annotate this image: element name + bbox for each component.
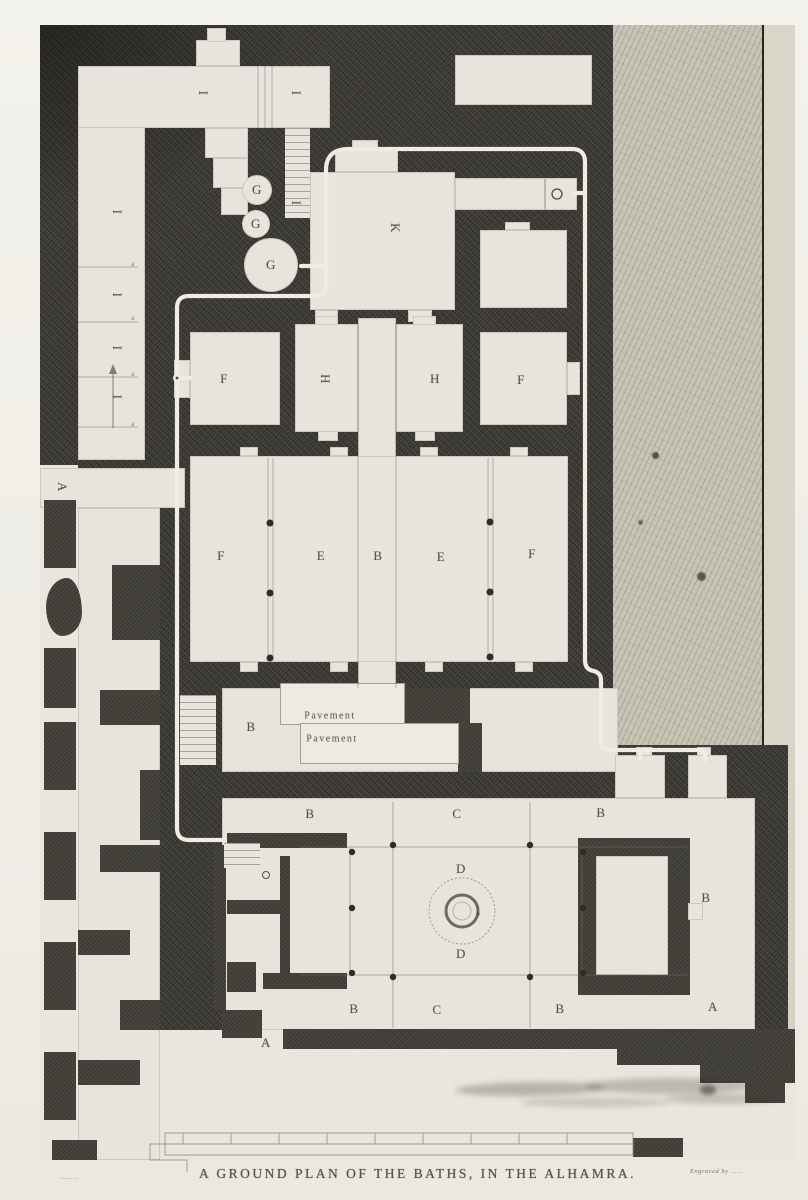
plan-label-i: I (109, 293, 125, 298)
plan-label-c: C (432, 1002, 441, 1018)
plan-label-a: A (261, 1035, 271, 1051)
plan-label-d: D (456, 946, 466, 962)
plan-label-a: A (708, 999, 718, 1015)
plate-caption: A GROUND PLAN OF THE BATHS, IN THE ALHAM… (40, 1166, 795, 1182)
plan-label-i: I (195, 91, 211, 96)
plan-label-pavement: Pavement (306, 734, 357, 745)
plan-label-h: H (317, 374, 333, 384)
plan-label-a: a (131, 370, 135, 378)
plan-label-f: F (528, 546, 536, 562)
engraved-plate-page: IIIIIIIaaaaGGGKFHHFFEBEFBPavementPavemen… (0, 0, 808, 1200)
plan-label-b: B (701, 890, 710, 906)
plan-label-k: K (387, 223, 403, 233)
plan-label-b: B (305, 806, 314, 822)
plan-label-f: F (217, 548, 225, 564)
plan-label-b: B (373, 548, 382, 564)
plan-label-a: A (54, 482, 70, 492)
plan-label-a: a (131, 314, 135, 322)
plan-label-a: a (131, 420, 135, 428)
plan-label-i: I (109, 346, 125, 351)
plan-label-pavement: Pavement (304, 711, 355, 722)
plan-label-i: I (288, 91, 304, 96)
plan-label-c: C (452, 806, 461, 822)
labels-layer: IIIIIIIaaaaGGGKFHHFFEBEFBPavementPavemen… (0, 0, 808, 1200)
engraver-credit-script: Engraved by …… (690, 1168, 743, 1175)
plan-label-e: E (317, 548, 325, 564)
plan-label-e: E (437, 549, 445, 565)
plan-label-g: G (252, 182, 262, 198)
plan-label-i: I (288, 201, 304, 206)
artist-credit-script: ……… (60, 1174, 79, 1181)
plan-label-h: H (430, 371, 440, 387)
plan-label-g: G (266, 257, 276, 273)
plan-label-g: G (251, 216, 261, 232)
plan-label-d: D (456, 861, 466, 877)
plan-label-b: B (246, 719, 255, 735)
plan-label-i: I (109, 210, 125, 215)
plan-label-i: I (109, 395, 125, 400)
plan-label-f: F (517, 372, 525, 388)
plan-label-f: F (220, 371, 228, 387)
plan-label-a: a (131, 260, 135, 268)
plan-label-b: B (596, 805, 605, 821)
plan-label-b: B (555, 1001, 564, 1017)
plan-label-b: B (349, 1001, 358, 1017)
